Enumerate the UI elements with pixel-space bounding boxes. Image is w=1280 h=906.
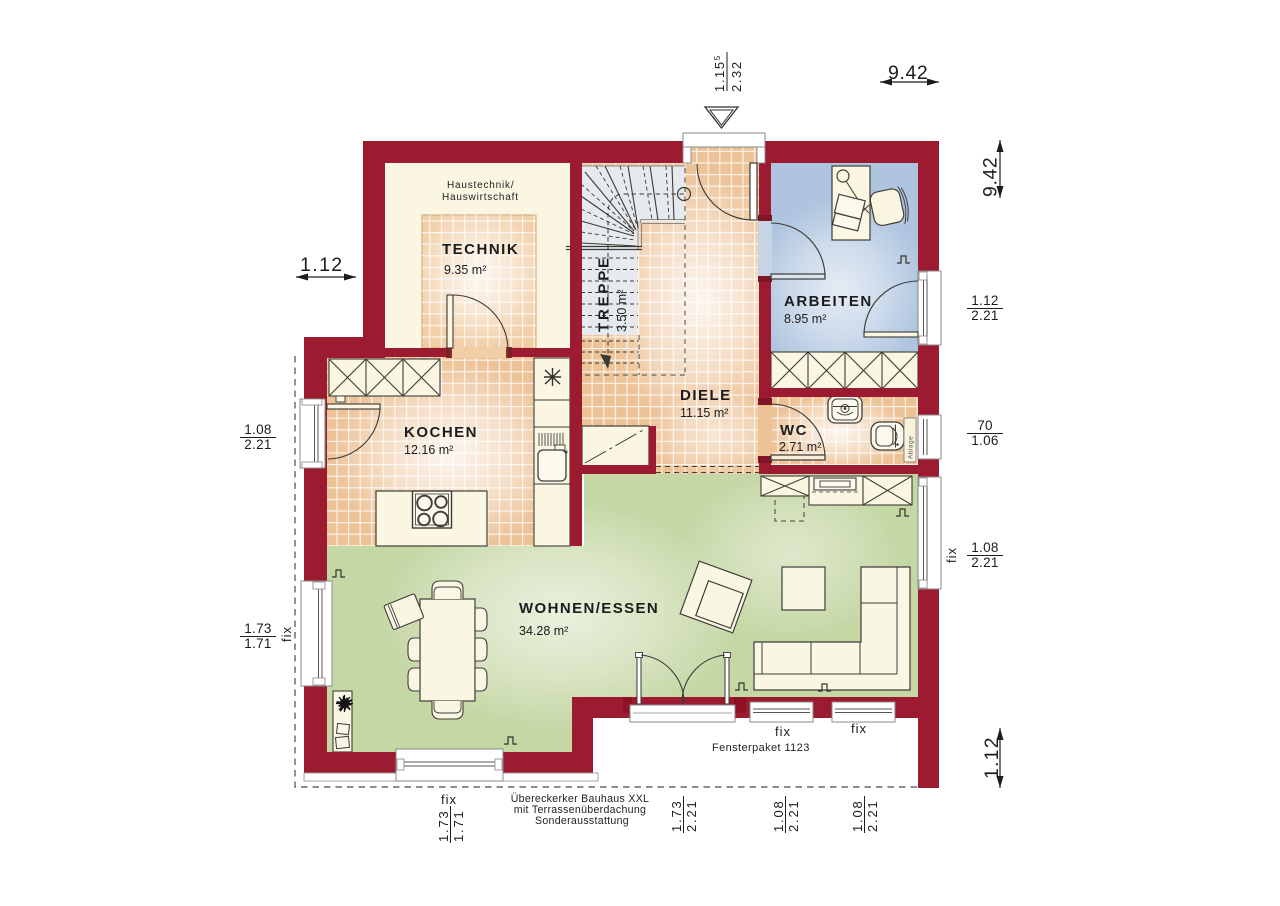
svg-text:1.73: 1.73 xyxy=(669,799,684,832)
svg-text:Hauswirtschaft: Hauswirtschaft xyxy=(442,192,519,203)
svg-text:TECHNIK: TECHNIK xyxy=(442,241,519,258)
svg-text:3.50 m²: 3.50 m² xyxy=(615,290,629,332)
svg-text:DIELE: DIELE xyxy=(680,387,732,404)
svg-text:1.08: 1.08 xyxy=(771,799,786,832)
svg-text:2.21: 2.21 xyxy=(971,308,998,323)
svg-text:fix: fix xyxy=(944,547,959,563)
svg-text:9.42: 9.42 xyxy=(888,62,928,84)
svg-text:2.21: 2.21 xyxy=(684,799,699,832)
svg-text:fix: fix xyxy=(441,792,457,807)
svg-text:ARBEITEN: ARBEITEN xyxy=(784,293,873,310)
svg-text:34.28 m²: 34.28 m² xyxy=(519,624,568,638)
svg-text:1.73: 1.73 xyxy=(244,621,271,636)
svg-text:Fensterpaket 1123: Fensterpaket 1123 xyxy=(712,742,810,754)
svg-text:WOHNEN/ESSEN: WOHNEN/ESSEN xyxy=(519,600,659,617)
svg-text:1.08: 1.08 xyxy=(244,422,271,437)
svg-text:12.16 m²: 12.16 m² xyxy=(404,443,453,457)
svg-text:2.21: 2.21 xyxy=(971,555,998,570)
svg-text:1.08: 1.08 xyxy=(971,540,998,555)
svg-text:8.95 m²: 8.95 m² xyxy=(784,312,826,326)
svg-text:fix: fix xyxy=(775,724,791,739)
svg-text:TREPPE: TREPPE xyxy=(596,255,613,332)
svg-text:Haustechnik/: Haustechnik/ xyxy=(447,180,514,191)
svg-text:70: 70 xyxy=(977,418,993,433)
svg-text:KOCHEN: KOCHEN xyxy=(404,424,478,441)
svg-text:1.73: 1.73 xyxy=(436,809,451,842)
svg-text:2.71 m²: 2.71 m² xyxy=(779,440,821,454)
svg-text:1.08: 1.08 xyxy=(850,799,865,832)
svg-text:fix: fix xyxy=(851,721,867,736)
svg-text:11.15 m²: 11.15 m² xyxy=(680,406,728,420)
svg-text:1.71: 1.71 xyxy=(244,636,271,651)
svg-text:1.06: 1.06 xyxy=(971,433,998,448)
svg-text:2.21: 2.21 xyxy=(786,799,801,832)
svg-text:2.21: 2.21 xyxy=(865,799,880,832)
svg-text:WC: WC xyxy=(780,422,808,439)
svg-text:9.35 m²: 9.35 m² xyxy=(444,263,486,277)
svg-text:Ablage: Ablage xyxy=(908,436,915,459)
svg-text:Sonderausstattung: Sonderausstattung xyxy=(535,815,629,827)
svg-text:2.32: 2.32 xyxy=(729,60,744,92)
svg-text:1.71: 1.71 xyxy=(451,809,466,842)
svg-text:2.21: 2.21 xyxy=(244,437,271,452)
svg-text:1.12: 1.12 xyxy=(971,293,998,308)
svg-text:fix: fix xyxy=(279,626,294,642)
svg-text:1.12: 1.12 xyxy=(300,254,344,276)
